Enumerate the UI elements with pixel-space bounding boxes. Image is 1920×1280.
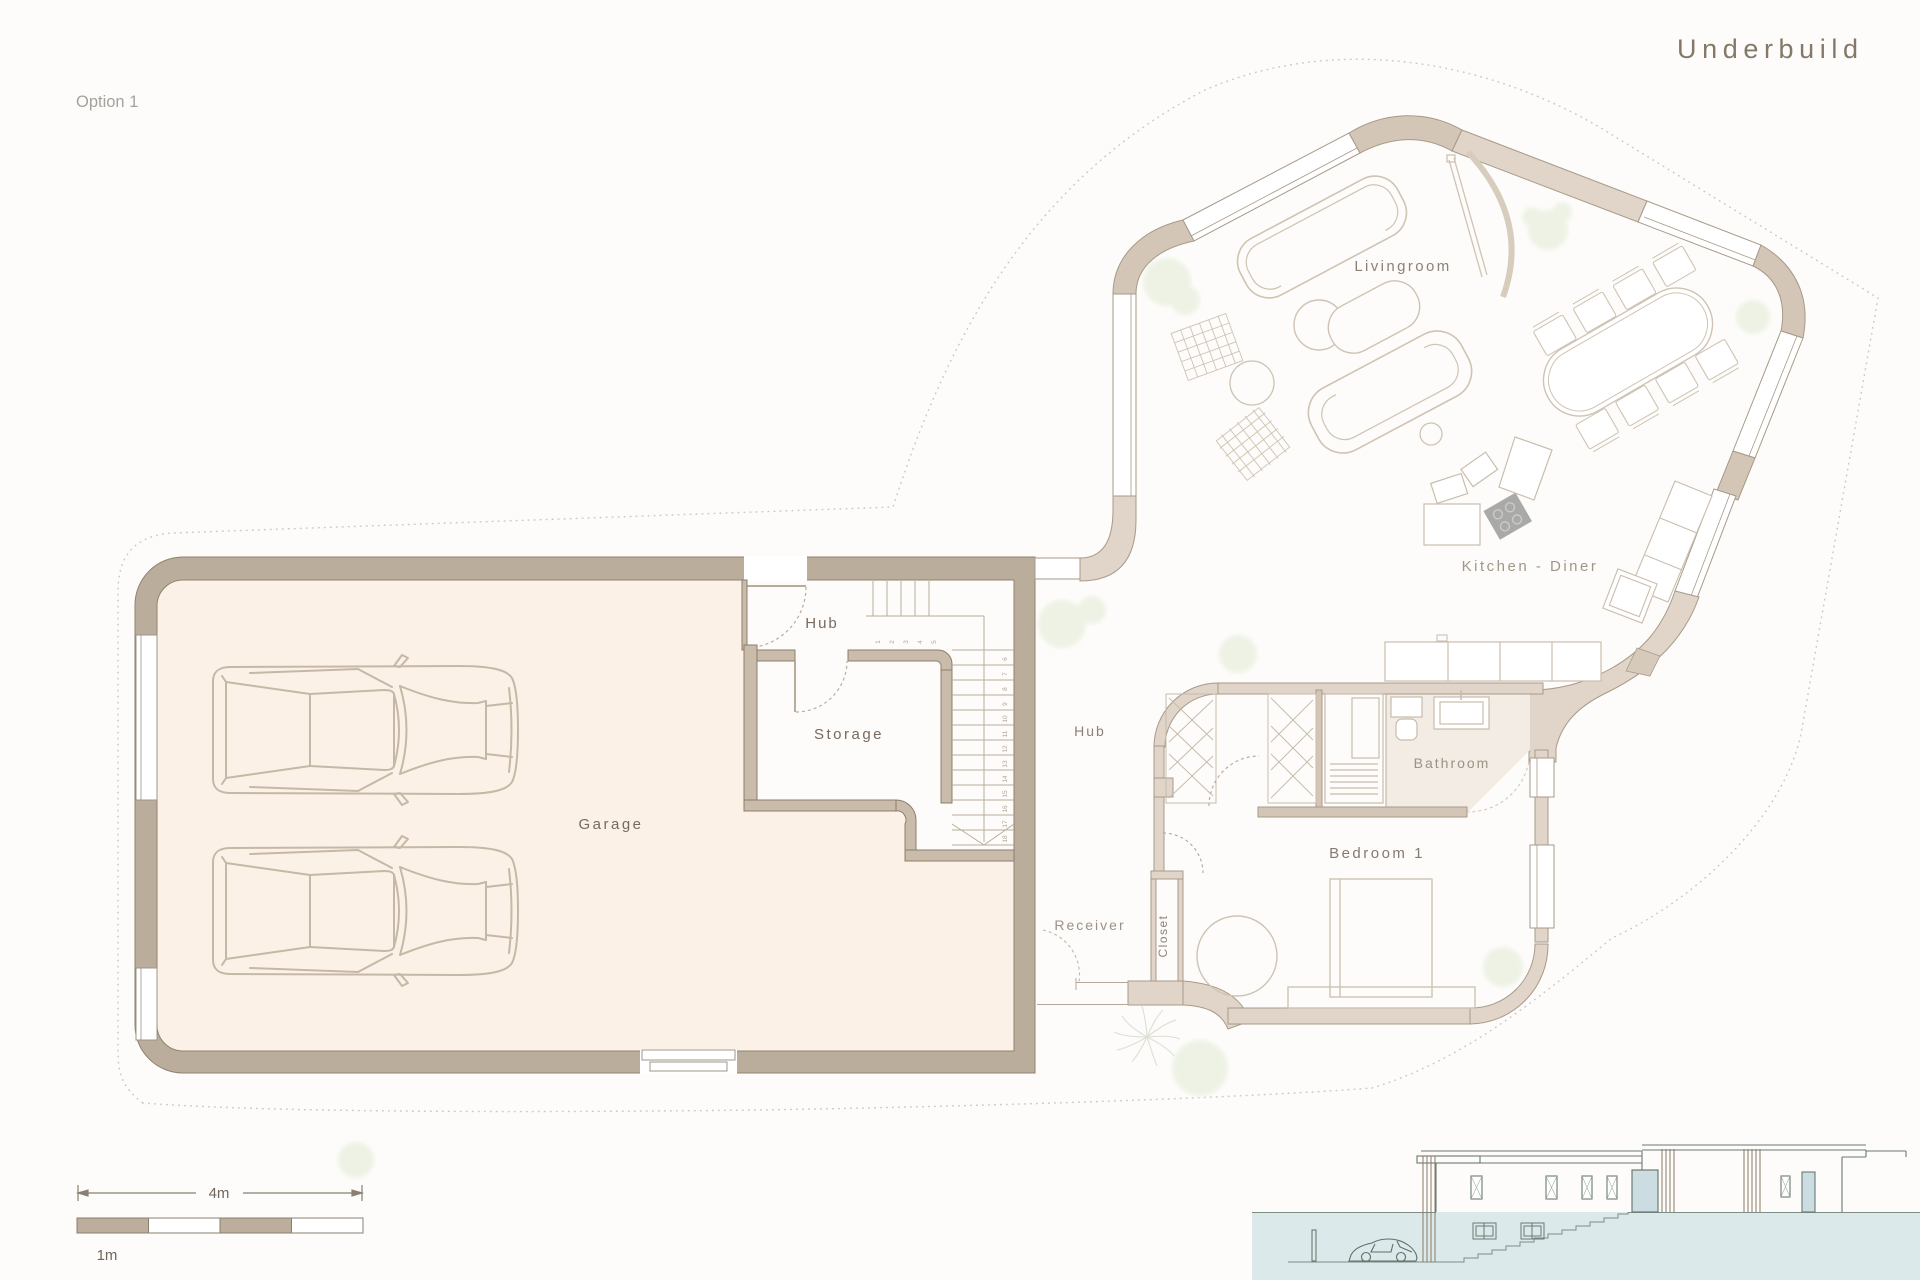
svg-text:Closet: Closet <box>1156 914 1170 957</box>
svg-text:1: 1 <box>875 640 882 644</box>
svg-text:12: 12 <box>1002 745 1009 753</box>
svg-text:5: 5 <box>931 640 938 644</box>
svg-text:Underbuild: Underbuild <box>1677 34 1864 64</box>
svg-text:7: 7 <box>1002 672 1009 676</box>
svg-text:11: 11 <box>1002 730 1009 737</box>
svg-text:13: 13 <box>1002 760 1009 768</box>
svg-text:Livingroom: Livingroom <box>1354 258 1451 275</box>
svg-text:17: 17 <box>1002 820 1009 828</box>
svg-text:14: 14 <box>1002 775 1009 783</box>
svg-text:Hub: Hub <box>1074 723 1106 739</box>
svg-text:Storage: Storage <box>814 726 884 743</box>
svg-text:8: 8 <box>1002 687 1009 691</box>
svg-text:2: 2 <box>889 640 896 644</box>
svg-text:Hub: Hub <box>805 615 839 632</box>
svg-text:Receiver: Receiver <box>1054 917 1125 933</box>
svg-text:10: 10 <box>1002 715 1009 723</box>
svg-text:Kitchen - Diner: Kitchen - Diner <box>1462 558 1599 575</box>
svg-text:4: 4 <box>917 640 924 644</box>
svg-text:Bedroom 1: Bedroom 1 <box>1329 845 1425 862</box>
svg-text:18: 18 <box>1002 835 1009 843</box>
svg-text:6: 6 <box>1002 657 1009 661</box>
svg-text:Bathroom: Bathroom <box>1414 755 1491 771</box>
svg-text:Garage: Garage <box>578 816 643 833</box>
svg-text:Option 1: Option 1 <box>76 93 138 111</box>
svg-text:1m: 1m <box>97 1247 118 1264</box>
svg-text:9: 9 <box>1002 702 1009 706</box>
svg-text:4m: 4m <box>209 1185 230 1202</box>
svg-text:16: 16 <box>1002 805 1009 813</box>
svg-text:3: 3 <box>903 640 910 644</box>
svg-text:15: 15 <box>1002 790 1009 798</box>
